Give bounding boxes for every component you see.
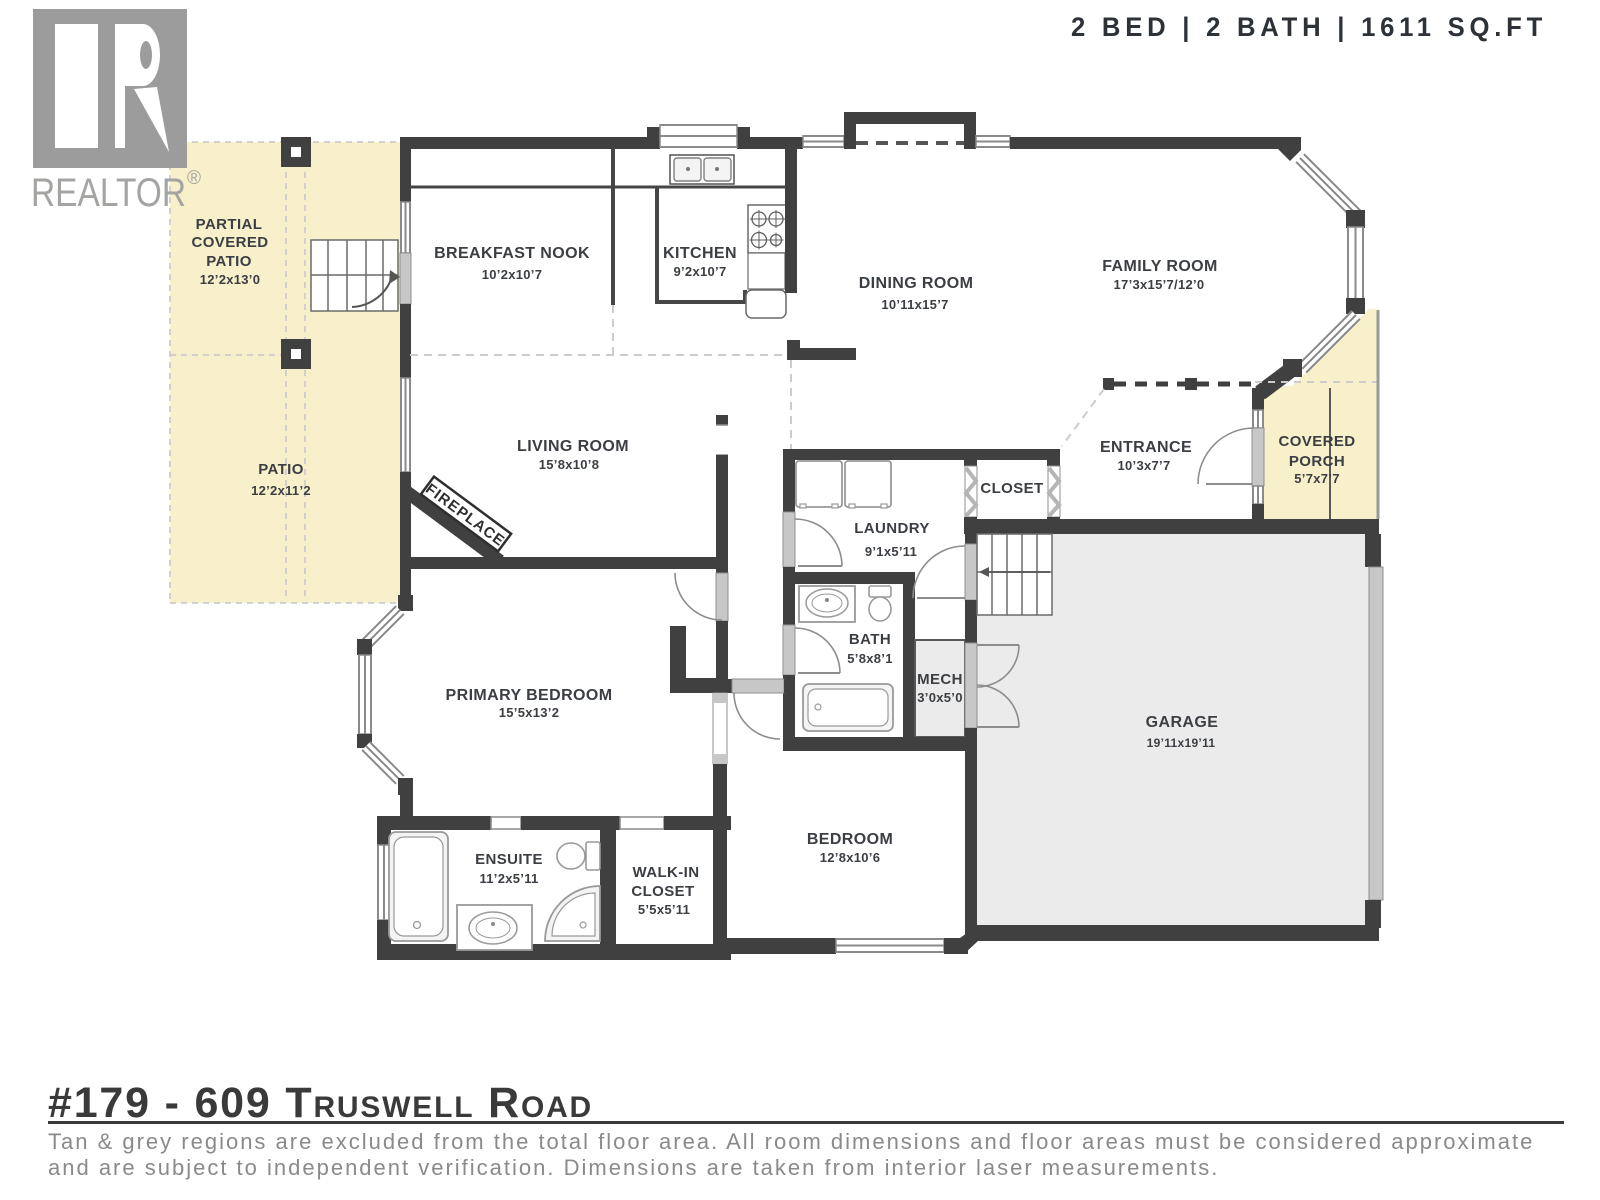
svg-text:9’1x5’11: 9’1x5’11 xyxy=(865,544,917,559)
svg-text:BATH: BATH xyxy=(849,631,891,648)
svg-text:MECH: MECH xyxy=(917,671,963,688)
svg-text:5’8x8’1: 5’8x8’1 xyxy=(847,651,892,666)
svg-text:15’8x10’8: 15’8x10’8 xyxy=(539,457,600,472)
svg-text:11’2x5’11: 11’2x5’11 xyxy=(479,871,538,886)
svg-text:3’0x5’0: 3’0x5’0 xyxy=(917,690,962,705)
svg-text:GARAGE: GARAGE xyxy=(1146,714,1219,731)
svg-text:10’2x10’7: 10’2x10’7 xyxy=(482,267,543,282)
svg-text:KITCHEN: KITCHEN xyxy=(663,245,737,262)
svg-text:19’11x19’11: 19’11x19’11 xyxy=(1147,736,1216,750)
svg-text:DINING ROOM: DINING ROOM xyxy=(859,275,974,292)
svg-text:LIVING ROOM: LIVING ROOM xyxy=(517,438,629,455)
svg-text:WALK-IN: WALK-IN xyxy=(633,864,700,881)
svg-text:COVERED: COVERED xyxy=(1279,433,1356,450)
svg-text:FAMILY ROOM: FAMILY ROOM xyxy=(1102,258,1218,275)
svg-text:CLOSET: CLOSET xyxy=(980,480,1043,497)
svg-text:BREAKFAST NOOK: BREAKFAST NOOK xyxy=(434,245,590,262)
svg-text:5’7x7’7: 5’7x7’7 xyxy=(1294,471,1339,486)
svg-text:17’3x15’7/12’0: 17’3x15’7/12’0 xyxy=(1114,277,1205,292)
svg-text:Tan & grey regions are exclude: Tan & grey regions are excluded from the… xyxy=(48,1129,1534,1154)
svg-text:#179 - 609 Truswell Road: #179 - 609 Truswell Road xyxy=(48,1079,593,1127)
svg-text:10’11x15’7: 10’11x15’7 xyxy=(881,297,948,312)
svg-text:PORCH: PORCH xyxy=(1289,453,1345,470)
svg-text:CLOSET: CLOSET xyxy=(631,883,694,900)
svg-text:12’2x11’2: 12’2x11’2 xyxy=(251,483,311,498)
svg-text:ENSUITE: ENSUITE xyxy=(475,851,543,868)
svg-text:and are subject to independent: and are subject to independent verificat… xyxy=(48,1155,1219,1180)
svg-text:LAUNDRY: LAUNDRY xyxy=(854,520,930,537)
svg-text:15’5x13’2: 15’5x13’2 xyxy=(499,705,560,720)
svg-text:REALTOR: REALTOR xyxy=(31,171,186,215)
svg-text:10’3x7’7: 10’3x7’7 xyxy=(1117,458,1170,473)
svg-text:COVERED: COVERED xyxy=(192,234,269,251)
svg-text:9’2x10’7: 9’2x10’7 xyxy=(673,264,726,279)
svg-text:5’5x5’11: 5’5x5’11 xyxy=(638,902,690,917)
svg-text:2 BED | 2 BATH | 1611 SQ.FT: 2 BED | 2 BATH | 1611 SQ.FT xyxy=(1071,12,1547,42)
svg-text:PATIO: PATIO xyxy=(258,461,304,478)
svg-text:12’8x10’6: 12’8x10’6 xyxy=(820,850,881,865)
svg-text:PRIMARY BEDROOM: PRIMARY BEDROOM xyxy=(446,687,613,704)
svg-text:ENTRANCE: ENTRANCE xyxy=(1100,439,1192,456)
svg-text:12’2x13’0: 12’2x13’0 xyxy=(200,272,261,287)
svg-text:®: ® xyxy=(187,168,201,189)
svg-text:PATIO: PATIO xyxy=(206,253,252,270)
svg-text:BEDROOM: BEDROOM xyxy=(807,831,893,848)
svg-text:PARTIAL: PARTIAL xyxy=(196,216,263,233)
